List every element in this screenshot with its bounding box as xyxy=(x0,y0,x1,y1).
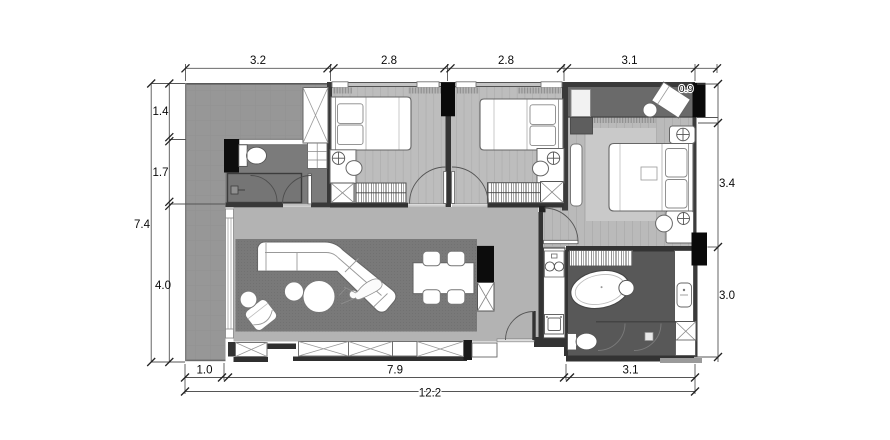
svg-text:3.1: 3.1 xyxy=(623,365,639,377)
svg-text:2.8: 2.8 xyxy=(498,55,514,67)
svg-text:3.2: 3.2 xyxy=(250,55,266,67)
svg-text:7.4: 7.4 xyxy=(134,219,151,231)
svg-text:3.0: 3.0 xyxy=(719,290,735,302)
svg-text:3.1: 3.1 xyxy=(622,55,638,67)
svg-text:1.7: 1.7 xyxy=(153,167,169,179)
svg-text:1.4: 1.4 xyxy=(153,106,170,118)
svg-text:4.0: 4.0 xyxy=(155,280,171,292)
svg-text:12.2: 12.2 xyxy=(419,388,441,400)
svg-text:1.0: 1.0 xyxy=(197,365,213,377)
svg-text:2.8: 2.8 xyxy=(381,55,397,67)
svg-text:3.4: 3.4 xyxy=(719,178,736,190)
svg-text:7.9: 7.9 xyxy=(387,365,403,377)
svg-text:0.9: 0.9 xyxy=(679,83,694,95)
